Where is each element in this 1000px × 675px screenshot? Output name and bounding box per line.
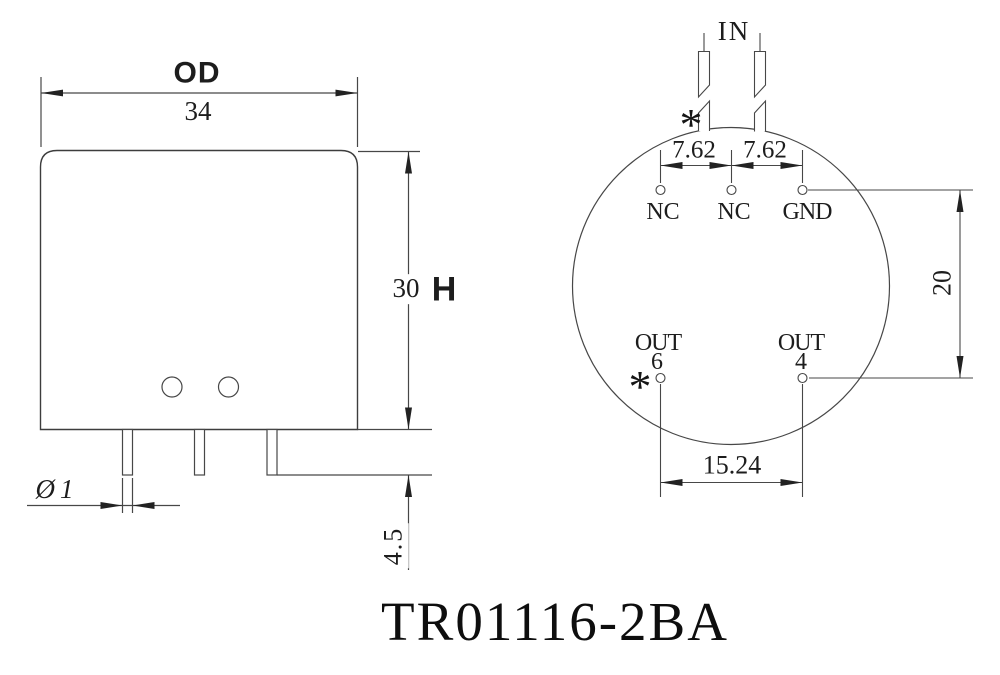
od-dimension-value: 34 (185, 97, 212, 127)
polarity-marker-bottom: * (629, 364, 652, 410)
front-pin-2 (195, 430, 205, 476)
pin-nc-1 (656, 186, 665, 195)
arrowhead (957, 356, 964, 378)
input-label: IN (718, 17, 751, 47)
arrowhead (957, 190, 964, 212)
pin-number-4: 4 (795, 349, 807, 375)
arrowhead (41, 90, 63, 97)
pin-diameter-value: Ø1 (36, 475, 79, 505)
row-spacing-value: 20 (929, 267, 958, 299)
arrowhead (405, 475, 412, 497)
input-lead-right (755, 33, 766, 132)
pin-length-dimension (277, 430, 432, 571)
height-dimension-value: 30 (390, 274, 423, 304)
pin-nc-2 (727, 186, 736, 195)
pin-length-value: 4.5 (380, 524, 409, 569)
arrowhead (661, 479, 683, 486)
arrowhead (336, 90, 358, 97)
front-pin-1 (123, 430, 133, 476)
front-pin-3 (267, 430, 277, 476)
part-number-title: TR01116-2BA (381, 592, 729, 653)
bottom-view (573, 33, 974, 497)
arrowhead (781, 479, 803, 486)
arrowhead (405, 152, 412, 174)
od-dimension-label: OD (174, 57, 221, 90)
component-body-outline (41, 151, 358, 430)
arrowhead (405, 408, 412, 430)
output-pitch-value: 15.24 (703, 452, 762, 481)
arrowhead (133, 502, 155, 509)
pin-number-6: 6 (651, 349, 663, 375)
front-view (27, 77, 432, 570)
pitch-left-value: 7.62 (672, 136, 716, 164)
height-dimension-label: H (432, 271, 457, 308)
technical-drawing-page: OD 34 30 H Ø1 4.5 IN * 7.62 7.62 NC NC G… (0, 0, 1000, 675)
pin-label-nc-2: NC (717, 199, 750, 225)
pin-label-nc-1: NC (646, 199, 679, 225)
pin-label-gnd: GND (783, 199, 832, 225)
drawing-linework (0, 0, 1000, 675)
pitch-right-value: 7.62 (743, 136, 787, 164)
arrowhead (101, 502, 123, 509)
pin-gnd (798, 186, 807, 195)
